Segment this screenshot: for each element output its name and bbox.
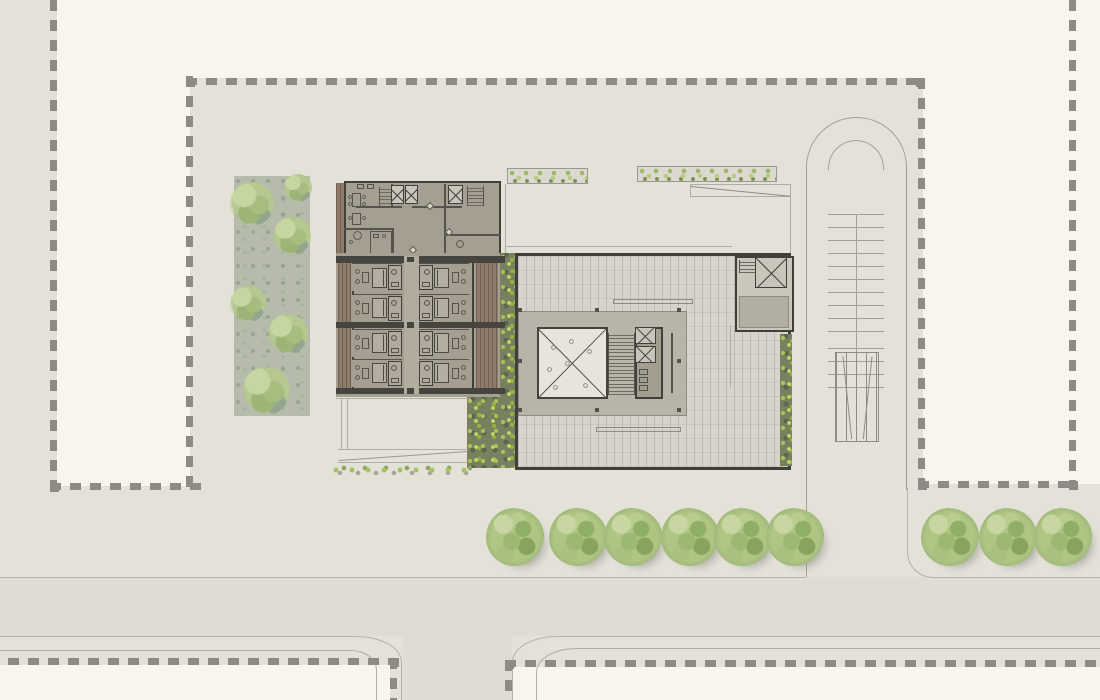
plaza-edge-west (505, 184, 506, 253)
atrium-seat (587, 349, 592, 354)
atrium-seat (547, 367, 552, 372)
stair-east (467, 186, 484, 206)
freestanding-wall (671, 333, 673, 393)
northeast-core-stair (739, 260, 756, 273)
dining-chair (348, 216, 352, 220)
wing-blade-east (472, 256, 474, 394)
boundary-corner (390, 658, 399, 667)
tree-canopy (766, 508, 824, 566)
garden-tree-canopy (230, 286, 266, 322)
planter-north-east (637, 166, 777, 182)
northeast-core-room (739, 296, 789, 328)
courtyard (515, 253, 791, 470)
wall (392, 228, 394, 256)
dining-chair (362, 202, 366, 206)
tree-shadow (494, 516, 550, 572)
wc-stall (639, 369, 648, 375)
hedge-west-wide (467, 397, 500, 468)
boundary-dash-site-west (186, 76, 193, 490)
boundary-corner (916, 78, 925, 87)
tree-shadow (774, 516, 830, 572)
wall (344, 228, 392, 230)
dining-chair (348, 195, 352, 199)
street-tree (486, 508, 544, 566)
dining-chair (362, 195, 366, 199)
street-tree (604, 508, 662, 566)
curb-top-east (945, 577, 1100, 589)
dining-table (352, 193, 361, 207)
wall (391, 184, 393, 208)
tree-canopy (604, 508, 662, 566)
tree-shadow (987, 516, 1043, 572)
wing-balcony-west (338, 257, 351, 393)
courtyard-stair (608, 333, 635, 395)
atrium-seat (551, 345, 556, 350)
boundary-corner (505, 660, 514, 669)
garden-tree-canopy (273, 217, 311, 255)
street-tree (1034, 508, 1092, 566)
side-table (367, 184, 374, 189)
hedge-east (780, 334, 792, 466)
dining-chair (362, 216, 366, 220)
street-tree (661, 508, 719, 566)
parcel-west (57, 0, 190, 486)
tree-canopy (714, 508, 772, 566)
tree-canopy (661, 508, 719, 566)
boundary-corner (918, 481, 927, 490)
wall (444, 184, 446, 207)
atrium-seat (583, 383, 588, 388)
lounge-table-round (353, 231, 362, 240)
planter-edge-east (730, 325, 731, 387)
dining-chair (348, 202, 352, 206)
wc-stall (639, 385, 648, 391)
wall (412, 206, 462, 208)
boundary-corner (1069, 481, 1078, 490)
parcel-outline-southeast (536, 648, 1100, 700)
wc-fixture (373, 234, 379, 238)
curb-top-east-curve (907, 488, 947, 578)
garden-strip (234, 176, 310, 416)
boundary-dash-east-outer (1069, 0, 1076, 488)
lounge-chair (349, 240, 353, 244)
wing-balcony-east (476, 257, 498, 393)
street-tree (714, 508, 772, 566)
side-table (357, 184, 364, 189)
street-tree (549, 508, 607, 566)
boundary-dash-east-bottom (918, 481, 1076, 488)
garden-tree-canopy (230, 182, 274, 226)
lobby-west-deck (336, 183, 344, 254)
driveway-edge-west (806, 216, 807, 577)
driveway-edge-east (906, 216, 907, 490)
wall (356, 206, 402, 208)
meeting-table-round (456, 240, 464, 248)
atrium-seat (565, 361, 570, 366)
boundary-corner (50, 483, 59, 492)
wc-fixture (382, 234, 386, 238)
street-tree (979, 508, 1037, 566)
boundary-dash-west-outer (50, 0, 57, 490)
boundary-dash-south-east-top (505, 660, 1100, 667)
shrub-strip-south (332, 464, 472, 477)
plaza-wall-line (347, 399, 348, 449)
tree-canopy (1034, 508, 1092, 566)
garden-tree-canopy (284, 174, 312, 202)
curb-top-west (0, 577, 806, 589)
plaza-line (505, 246, 732, 247)
atrium-seat (553, 385, 558, 390)
street-tree (766, 508, 824, 566)
tree-shadow (669, 516, 725, 572)
boundary-dash-site-east (918, 78, 925, 488)
skylight-atrium (537, 327, 608, 399)
wc-stall (639, 377, 648, 383)
tree-canopy (549, 508, 607, 566)
hedge-west-strip (500, 253, 515, 468)
bench-south (596, 427, 681, 432)
wing-corridor (404, 256, 420, 394)
parcel-north-strip (190, 0, 923, 78)
wing-blade-west (352, 256, 354, 394)
boundary-dash-south-west-top (8, 658, 397, 665)
tree-shadow (1042, 516, 1098, 572)
atrium-seat (569, 339, 574, 344)
garden-tree-canopy (242, 367, 290, 415)
tree-shadow (612, 516, 668, 572)
tree-shadow (722, 516, 778, 572)
dining-table (352, 213, 361, 225)
bench-north (613, 299, 693, 304)
boundary-corner (186, 78, 195, 87)
boundary-dash-site-north (186, 78, 920, 85)
garden-tree-canopy (268, 314, 308, 354)
plaza-line-south (336, 398, 470, 399)
tree-canopy (486, 508, 544, 566)
site-plan (0, 0, 1100, 700)
tree-canopy (979, 508, 1037, 566)
road-vertical-stub (403, 636, 512, 700)
plaza-wall-line (341, 399, 342, 449)
parking-ramp (835, 352, 879, 442)
boundary-dash-west-bottom (50, 483, 207, 490)
tree-shadow (557, 516, 613, 572)
wall (444, 234, 501, 236)
plaza-edge-east (790, 197, 791, 253)
planter-north-west (507, 168, 588, 184)
